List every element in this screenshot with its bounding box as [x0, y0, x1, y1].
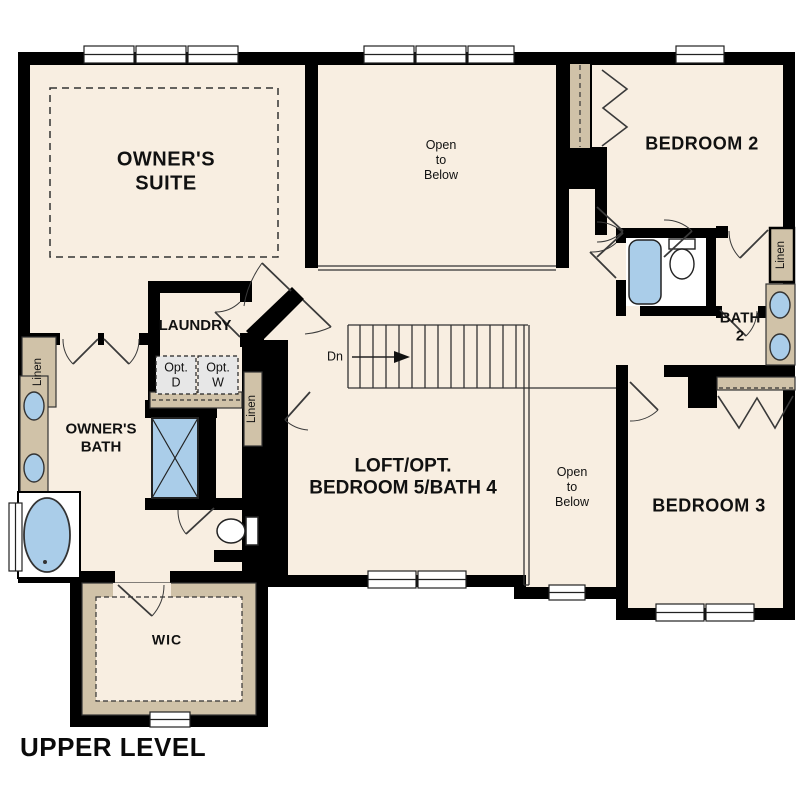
bedroom-3-label: BEDROOM 3 [652, 495, 766, 516]
wic-door-gap [113, 583, 171, 597]
owners-bath-label: OWNER'S BATH [65, 420, 136, 455]
linen-left-label: Linen [32, 358, 46, 386]
wic-floor [96, 597, 242, 701]
hall-bath-tub [629, 240, 661, 304]
owners-toilet-tank [246, 517, 258, 545]
hall-toilet-bowl [670, 249, 694, 279]
bath-2-label: BATH 2 [720, 309, 761, 344]
linen-right-label: Linen [775, 241, 789, 269]
owners-tub [24, 498, 70, 572]
opt-washer-label: Opt. W [206, 360, 230, 390]
page-title: UPPER LEVEL [20, 732, 206, 763]
floor-plan-page: OWNER'S SUITE Open to Below BEDROOM 2 Li… [0, 0, 810, 810]
open-to-below-small-label: Open to Below [555, 465, 589, 509]
opt-dryer-label: Opt. D [164, 360, 188, 390]
linen-mid-label: Linen [246, 395, 260, 423]
owners-suite-label: OWNER'S SUITE [117, 148, 215, 195]
wic-label: WIC [152, 632, 182, 649]
laundry-label: LAUNDRY [159, 317, 232, 335]
open-to-below-top-label: Open to Below [424, 138, 458, 182]
floor-plan-drawing [0, 0, 810, 810]
owners-sink-2 [24, 454, 44, 482]
stairs-dn-label: Dn [327, 350, 343, 365]
bedroom-2-label: BEDROOM 2 [645, 133, 759, 154]
bath2-sink-2 [770, 334, 790, 360]
owners-sink-1 [24, 392, 44, 420]
owners-toilet-bowl [217, 519, 245, 543]
bath2-sink-1 [770, 292, 790, 318]
loft-label: LOFT/OPT. BEDROOM 5/BATH 4 [309, 456, 497, 501]
